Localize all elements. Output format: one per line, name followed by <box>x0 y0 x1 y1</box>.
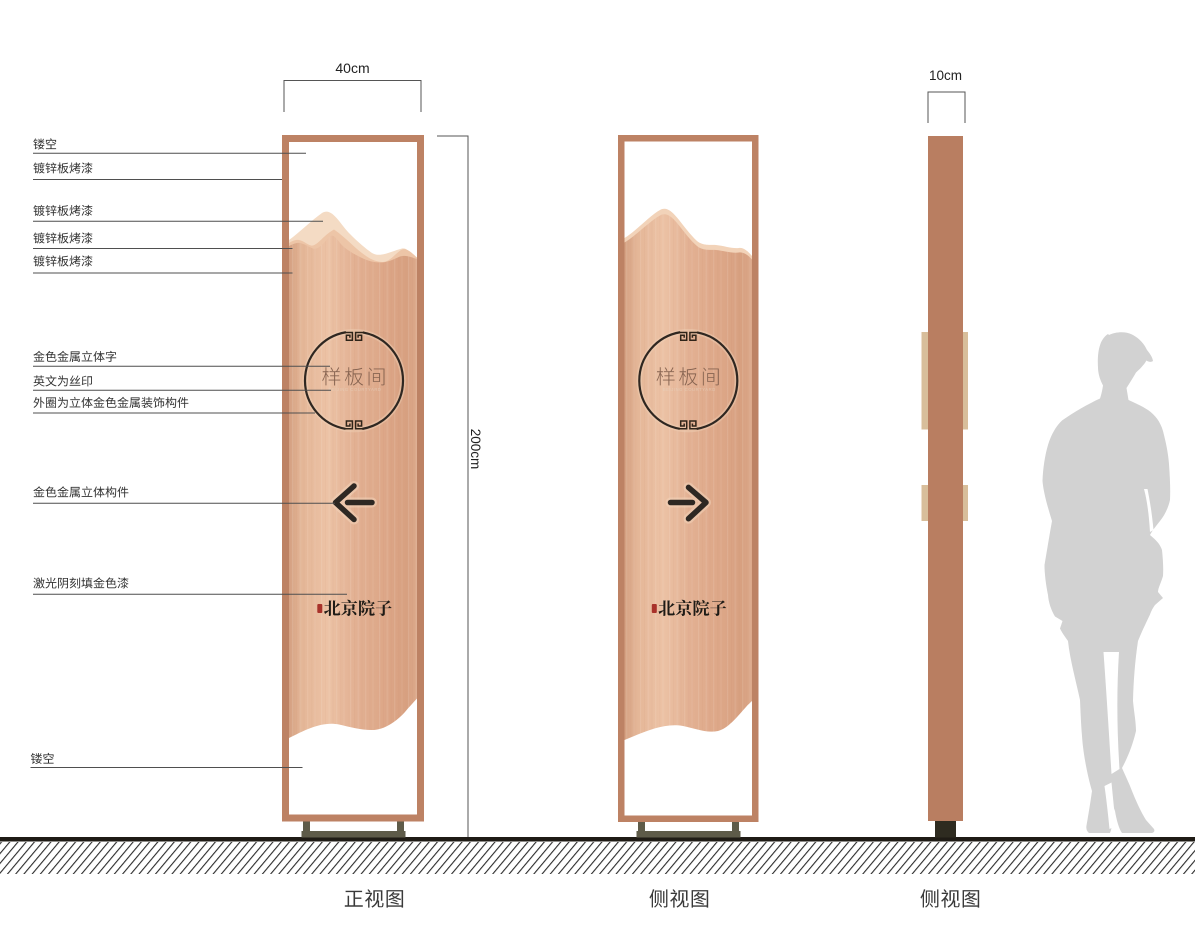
svg-text:40cm: 40cm <box>335 60 369 76</box>
svg-text:200cm: 200cm <box>468 429 483 470</box>
svg-text:10cm: 10cm <box>929 68 962 83</box>
svg-text:BEIJING COURTYARD: BEIJING COURTYARD <box>663 387 716 392</box>
svg-text:BEIJING COURTYARD: BEIJING COURTYARD <box>329 387 382 392</box>
